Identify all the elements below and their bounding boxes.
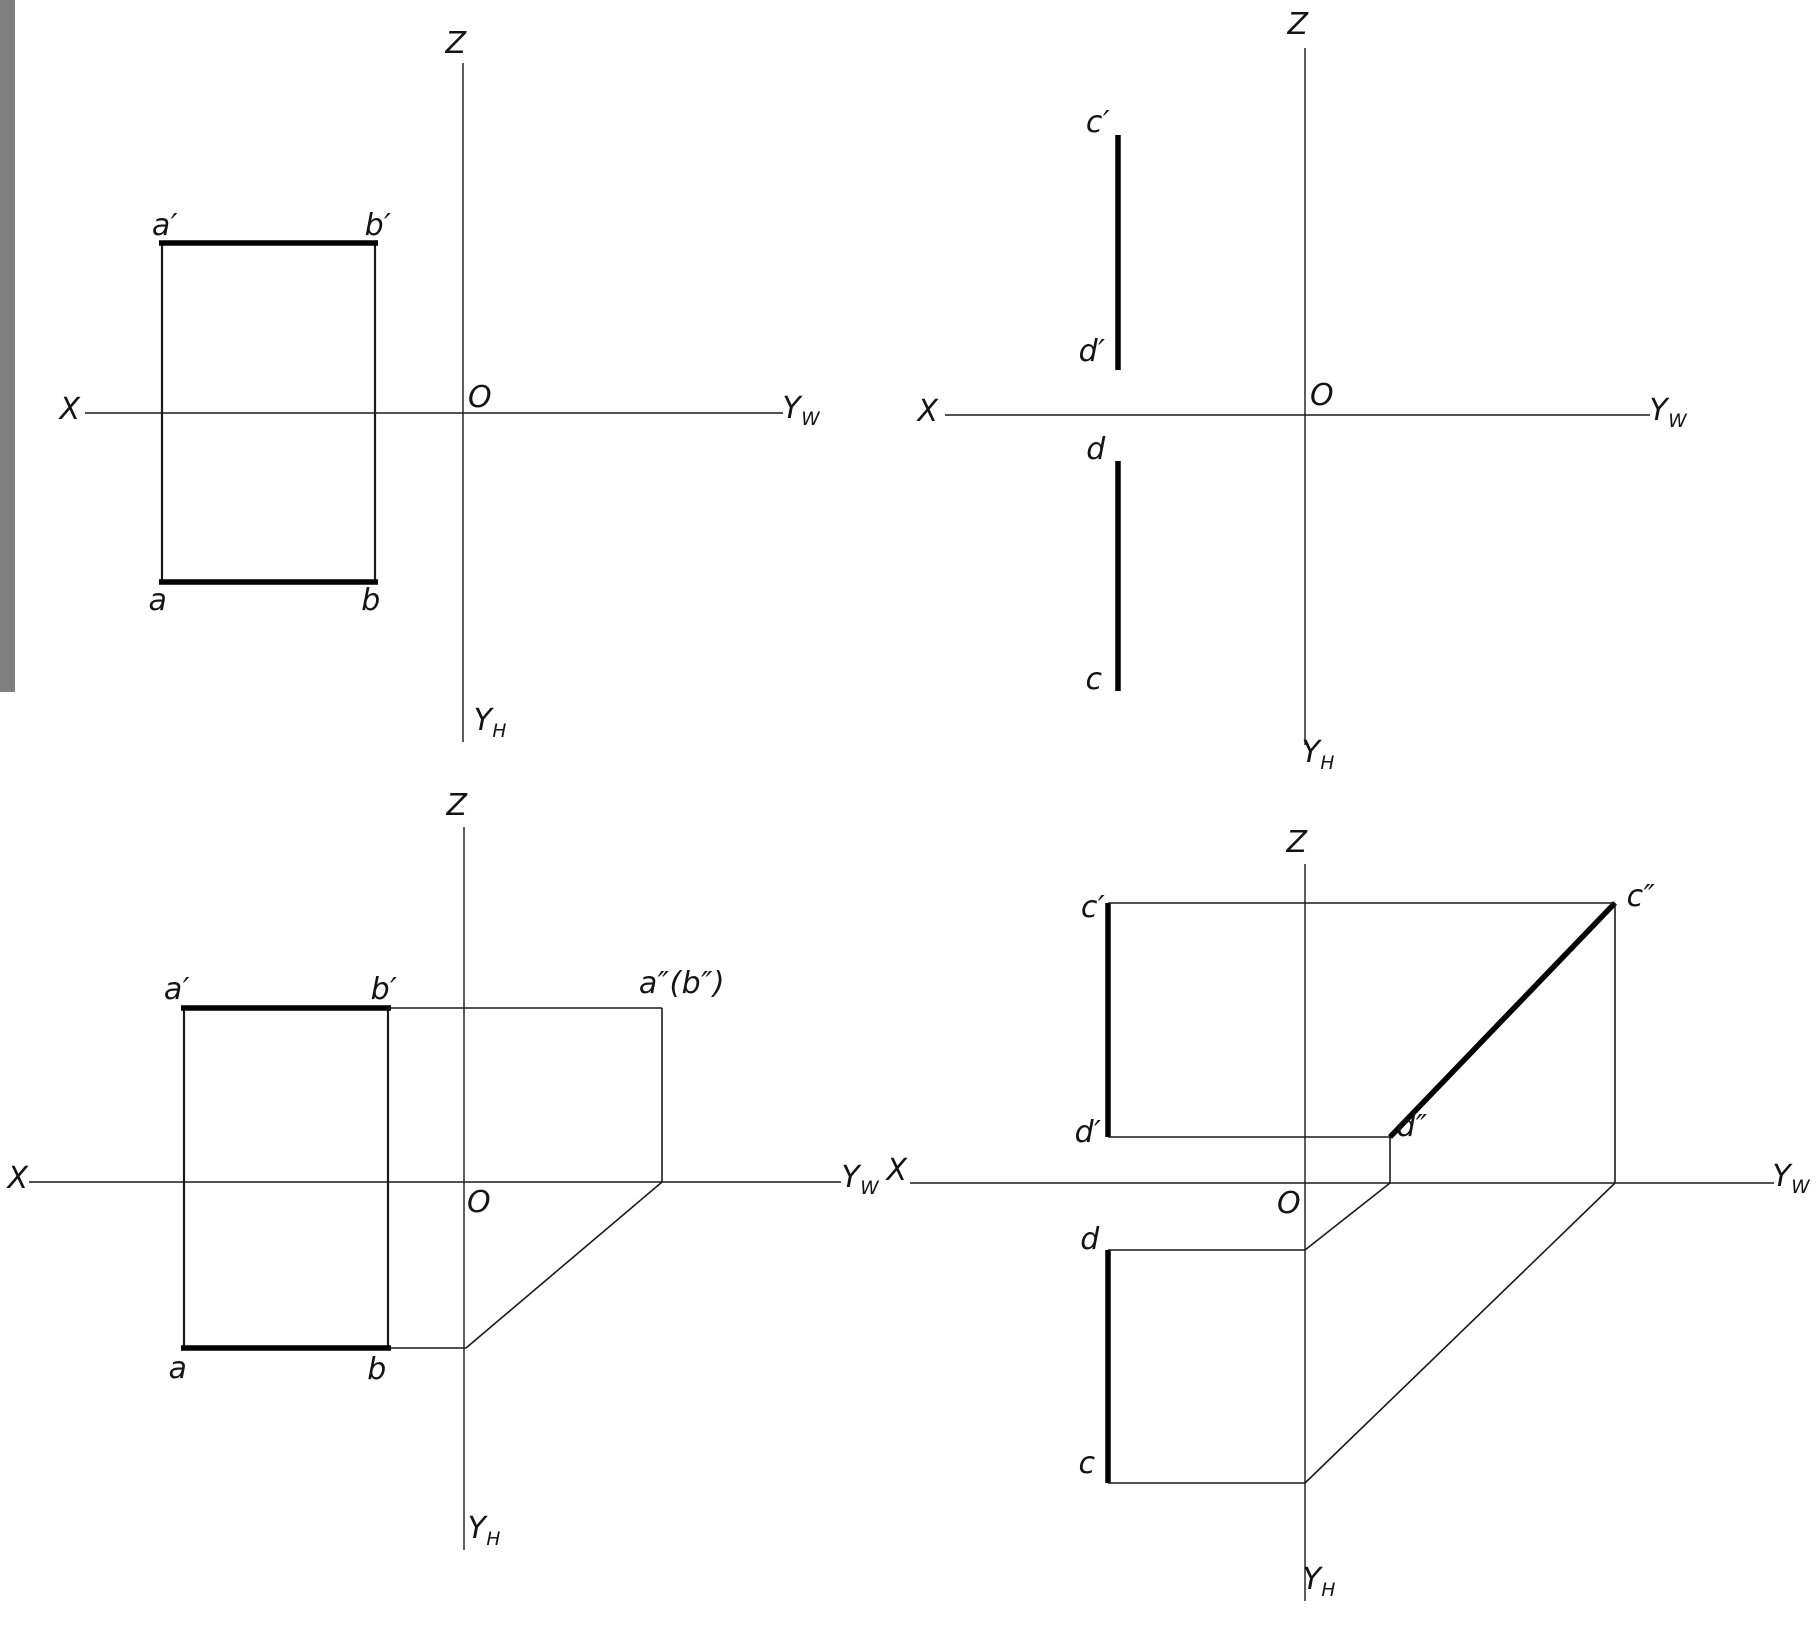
bottom-right-label-c-text: c xyxy=(1079,1446,1096,1481)
top-left-label-a: a xyxy=(149,586,168,616)
bottom-right-label-d-double-prime: d″ xyxy=(1396,1112,1427,1142)
bottom-left-label-a-b-double-prime: a″(b″) xyxy=(639,969,725,999)
bottom-left-label-b-prime: b′ xyxy=(371,975,398,1005)
bottom-left-label-o: O xyxy=(467,1188,491,1218)
bottom-left-label-a-b-double-prime-text: a″(b″) xyxy=(639,966,725,1001)
top-left-label-yw-text: Y xyxy=(782,391,801,426)
bottom-left-label-a-prime: a′ xyxy=(164,975,190,1005)
top-left-label-b-text: b xyxy=(361,583,381,618)
bottom-right-transfer-diagonal-d xyxy=(1305,1183,1390,1250)
top-right-label-z-text: Z xyxy=(1287,7,1308,42)
bottom-right-label-z-text: Z xyxy=(1286,825,1307,860)
top-right-label-c-prime: c′ xyxy=(1086,108,1110,138)
bottom-left-label-b-text: b xyxy=(367,1352,387,1387)
bottom-left-label-z-text: Z xyxy=(446,788,467,823)
top-right-label-yw-text: Y xyxy=(1649,393,1668,428)
bottom-right-label-x-text: X xyxy=(886,1153,907,1188)
top-left-label-a-prime-text: a′ xyxy=(152,208,178,243)
bottom-left-label-yh: YH xyxy=(468,1514,501,1550)
top-left-label-z: Z xyxy=(445,29,466,59)
top-left-label-o-text: O xyxy=(468,380,492,415)
top-left-label-a-prime: a′ xyxy=(152,211,178,241)
bottom-right-label-yh: YH xyxy=(1303,1565,1336,1601)
top-left-label-yh-subscript: H xyxy=(492,721,506,742)
bottom-left-label-yh-text: Y xyxy=(468,1511,487,1546)
top-right-label-x-text: X xyxy=(917,394,938,429)
bottom-right-label-o: O xyxy=(1277,1189,1301,1219)
bottom-right-label-d-prime: d′ xyxy=(1075,1118,1102,1148)
bottom-right-label-c-double-prime-text: c″ xyxy=(1627,879,1656,914)
bottom-right-label-z: Z xyxy=(1286,828,1307,858)
bottom-right-label-yh-text: Y xyxy=(1303,1562,1322,1597)
top-left-label-b-prime-text: b′ xyxy=(365,208,392,243)
bottom-left-label-yh-subscript: H xyxy=(486,1529,500,1550)
bottom-left-label-x-text: X xyxy=(7,1161,28,1196)
top-left-label-o: O xyxy=(468,383,492,413)
bottom-right-label-c-prime-text: c′ xyxy=(1081,890,1105,925)
bottom-left-label-b: b xyxy=(367,1355,387,1385)
projection-diagram-page: ZOXYWYHa′b′abZOXYWYHc′d′dcZOXYWYHa′b′aba… xyxy=(0,0,1817,1629)
top-right-label-d: d xyxy=(1086,435,1106,465)
top-right-label-d-prime-text: d′ xyxy=(1079,334,1106,369)
bottom-right-transfer-diagonal-c xyxy=(1305,1183,1615,1483)
top-right-label-yw: YW xyxy=(1649,396,1686,432)
top-left-label-b: b xyxy=(361,586,381,616)
bottom-left-label-o-text: O xyxy=(467,1185,491,1220)
bottom-right-label-yh-subscript: H xyxy=(1321,1580,1335,1601)
top-right-label-c: c xyxy=(1086,665,1103,695)
top-right-label-yh-text: Y xyxy=(1302,735,1321,770)
top-right-label-o-text: O xyxy=(1310,378,1334,413)
top-right-label-c-prime-text: c′ xyxy=(1086,105,1110,140)
bottom-right-label-d-double-prime-text: d″ xyxy=(1396,1109,1427,1144)
bottom-right-label-c: c xyxy=(1079,1449,1096,1479)
bottom-right-label-d: d xyxy=(1080,1225,1100,1255)
top-left-label-yw: YW xyxy=(782,394,819,430)
top-right-label-o: O xyxy=(1310,381,1334,411)
bottom-left-transfer-diagonal-45 xyxy=(466,1182,662,1348)
bottom-left-label-yw: YW xyxy=(841,1163,878,1199)
top-left-label-yh-text: Y xyxy=(474,703,493,738)
top-right-label-z: Z xyxy=(1287,10,1308,40)
bottom-left-label-a-prime-text: a′ xyxy=(164,972,190,1007)
bottom-right-label-o-text: O xyxy=(1277,1186,1301,1221)
top-right-label-yh: YH xyxy=(1302,738,1335,774)
top-right-label-yw-subscript: W xyxy=(1668,411,1686,432)
bottom-left-label-z: Z xyxy=(446,791,467,821)
top-left-label-yw-subscript: W xyxy=(801,409,819,430)
bottom-right-label-x: X xyxy=(886,1156,907,1186)
bottom-right-label-yw-subscript: W xyxy=(1791,1177,1809,1198)
bottom-right-label-c-prime: c′ xyxy=(1081,893,1105,923)
top-right-label-x: X xyxy=(917,397,938,427)
top-right-label-c-text: c xyxy=(1086,662,1103,697)
top-right-label-d-text: d xyxy=(1086,432,1106,467)
bottom-left-label-b-prime-text: b′ xyxy=(371,972,398,1007)
bottom-right-label-yw-text: Y xyxy=(1772,1159,1791,1194)
top-left-label-yh: YH xyxy=(474,706,507,742)
bottom-left-label-yw-subscript: W xyxy=(860,1178,878,1199)
diagram-svg xyxy=(0,0,1817,1629)
top-right-label-d-prime: d′ xyxy=(1079,337,1106,367)
bottom-right-label-yw: YW xyxy=(1772,1162,1809,1198)
bottom-right-label-d-prime-text: d′ xyxy=(1075,1115,1102,1150)
top-left-label-x: X xyxy=(59,395,80,425)
top-left-label-x-text: X xyxy=(59,392,80,427)
top-left-label-z-text: Z xyxy=(445,26,466,61)
bottom-left-label-a-text: a xyxy=(169,1351,188,1386)
top-right-label-yh-subscript: H xyxy=(1320,753,1334,774)
bottom-left-label-x: X xyxy=(7,1164,28,1194)
bottom-right-label-c-double-prime: c″ xyxy=(1627,882,1656,912)
bottom-left-label-a: a xyxy=(169,1354,188,1384)
bottom-right-label-d-text: d xyxy=(1080,1222,1100,1257)
bottom-right-segment-cd-side-thick xyxy=(1390,903,1615,1137)
bottom-left-label-yw-text: Y xyxy=(841,1160,860,1195)
top-left-label-a-text: a xyxy=(149,583,168,618)
top-left-label-b-prime: b′ xyxy=(365,211,392,241)
